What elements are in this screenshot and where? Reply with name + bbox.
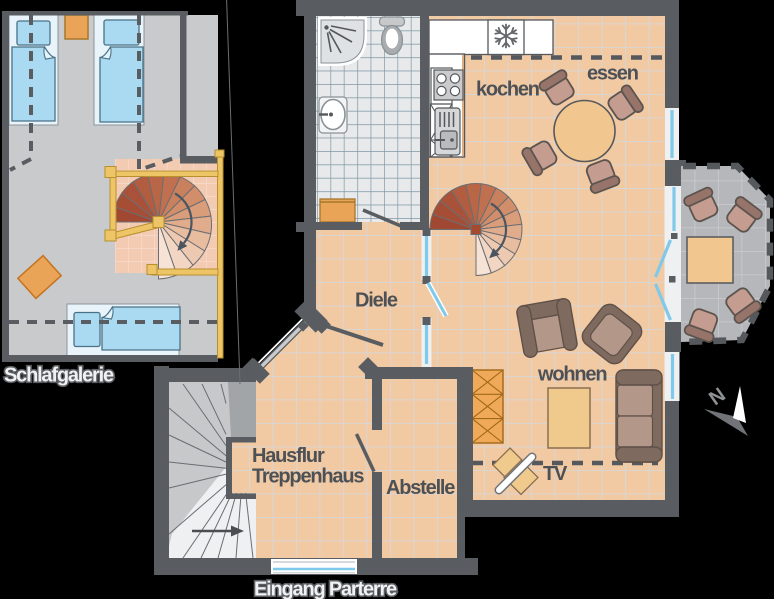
svg-text:Abstelle: Abstelle — [386, 477, 455, 499]
svg-text:Diele: Diele — [355, 290, 398, 312]
svg-text:wohnen: wohnen — [537, 364, 606, 386]
svg-text:TV: TV — [543, 463, 568, 485]
svg-text:Eingang Parterre: Eingang Parterre — [254, 579, 397, 599]
svg-text:Schlafgalerie: Schlafgalerie — [4, 365, 114, 387]
svg-text:Treppenhaus: Treppenhaus — [252, 466, 364, 488]
svg-text:Hausflur: Hausflur — [252, 445, 325, 467]
svg-text:kochen: kochen — [476, 79, 539, 101]
svg-text:essen: essen — [587, 63, 638, 85]
